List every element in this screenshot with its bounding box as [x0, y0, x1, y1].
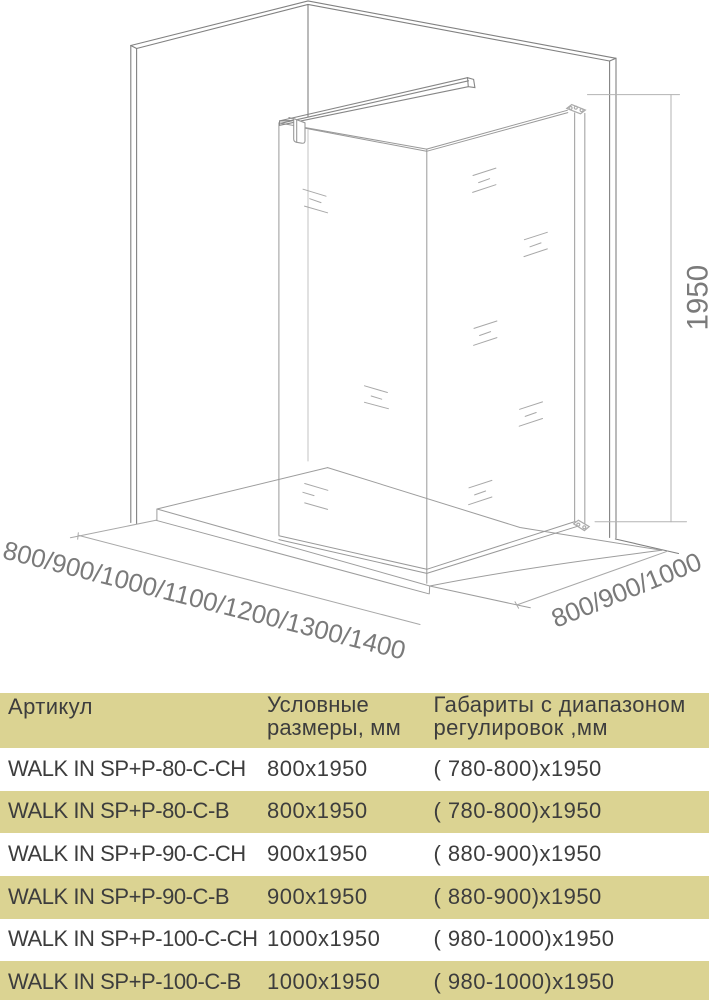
svg-text:1950: 1950 [682, 265, 709, 331]
svg-text:800/900/1000: 800/900/1000 [547, 546, 706, 633]
svg-text:800/900/1000/1100/1200/1300/14: 800/900/1000/1100/1200/1300/1400 [0, 537, 408, 666]
